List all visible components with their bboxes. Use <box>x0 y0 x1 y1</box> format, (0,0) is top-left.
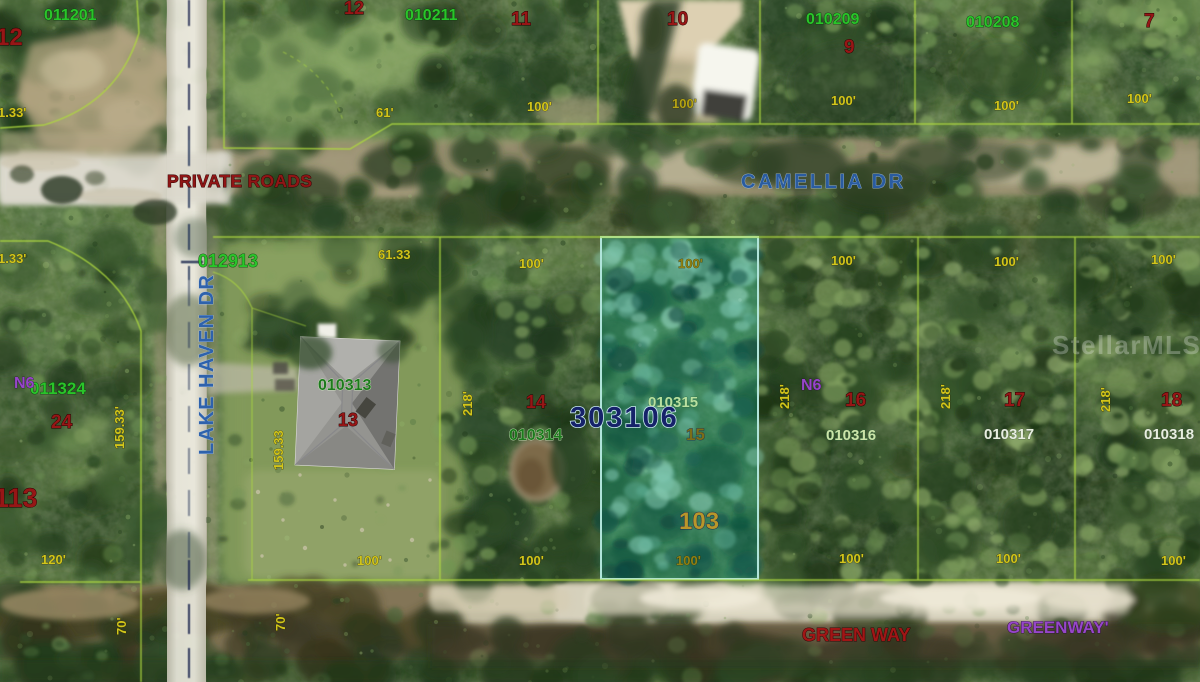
svg-text:218': 218' <box>938 384 953 409</box>
svg-text:100': 100' <box>519 553 544 568</box>
svg-text:10: 10 <box>667 9 688 30</box>
svg-text:010317: 010317 <box>984 426 1034 443</box>
svg-text:13: 13 <box>338 410 358 430</box>
svg-text:100': 100' <box>527 99 552 114</box>
svg-text:14: 14 <box>526 392 546 412</box>
svg-text:011324: 011324 <box>30 379 86 398</box>
svg-text:7: 7 <box>1144 11 1155 32</box>
svg-text:100': 100' <box>678 256 703 271</box>
svg-text:18: 18 <box>1161 390 1182 411</box>
svg-text:218': 218' <box>1098 387 1113 412</box>
svg-text:1.33': 1.33' <box>0 105 26 120</box>
svg-text:100': 100' <box>831 253 856 268</box>
svg-text:15: 15 <box>686 425 705 444</box>
svg-text:010211: 010211 <box>405 7 458 24</box>
svg-text:LAKE HAVEN DR: LAKE HAVEN DR <box>196 274 218 455</box>
svg-text:PRIVATE ROADS: PRIVATE ROADS <box>167 171 312 191</box>
svg-text:100': 100' <box>994 98 1019 113</box>
svg-text:GREENWAY': GREENWAY' <box>1007 618 1109 637</box>
svg-text:100': 100' <box>672 96 697 111</box>
svg-text:159.33': 159.33' <box>112 406 127 449</box>
svg-text:N6: N6 <box>14 375 35 392</box>
svg-text:24: 24 <box>51 412 73 433</box>
svg-text:70': 70' <box>114 617 129 635</box>
svg-text:12: 12 <box>0 24 23 51</box>
svg-text:103: 103 <box>679 508 719 535</box>
svg-text:100': 100' <box>519 256 544 271</box>
svg-text:100': 100' <box>1151 252 1176 267</box>
svg-text:StellarMLS: StellarMLS <box>1052 330 1200 360</box>
svg-text:100': 100' <box>994 254 1019 269</box>
svg-text:1.33': 1.33' <box>0 251 26 266</box>
svg-text:010314: 010314 <box>509 427 562 444</box>
svg-text:9: 9 <box>844 37 855 58</box>
svg-text:100': 100' <box>831 93 856 108</box>
svg-text:218': 218' <box>777 384 792 409</box>
svg-text:GREEN WAY: GREEN WAY <box>802 625 910 645</box>
svg-text:159.33: 159.33 <box>271 430 286 470</box>
svg-text:010208: 010208 <box>966 14 1019 31</box>
svg-text:120': 120' <box>41 552 66 567</box>
svg-text:010316: 010316 <box>826 427 876 444</box>
svg-text:CAMELLIA DR: CAMELLIA DR <box>741 171 906 193</box>
svg-text:61': 61' <box>376 105 394 120</box>
svg-text:011201: 011201 <box>44 7 97 24</box>
svg-text:12: 12 <box>344 0 364 18</box>
svg-text:012913: 012913 <box>198 251 258 271</box>
svg-text:100': 100' <box>1161 553 1186 568</box>
svg-text:11: 11 <box>511 9 532 30</box>
svg-text:010209: 010209 <box>806 11 859 28</box>
svg-text:61.33: 61.33 <box>378 247 411 262</box>
svg-text:010313: 010313 <box>318 377 371 394</box>
svg-text:N6: N6 <box>801 377 822 394</box>
svg-text:17: 17 <box>1004 390 1025 411</box>
svg-text:100': 100' <box>676 553 701 568</box>
svg-text:16: 16 <box>845 390 866 411</box>
svg-text:100': 100' <box>357 553 382 568</box>
svg-text:100': 100' <box>1127 91 1152 106</box>
svg-text:303106: 303106 <box>570 402 679 434</box>
svg-text:100': 100' <box>839 551 864 566</box>
svg-text:113: 113 <box>0 483 38 513</box>
svg-text:010318: 010318 <box>1144 426 1194 443</box>
svg-text:100': 100' <box>996 551 1021 566</box>
svg-text:70': 70' <box>273 613 288 631</box>
svg-text:218': 218' <box>460 391 475 416</box>
